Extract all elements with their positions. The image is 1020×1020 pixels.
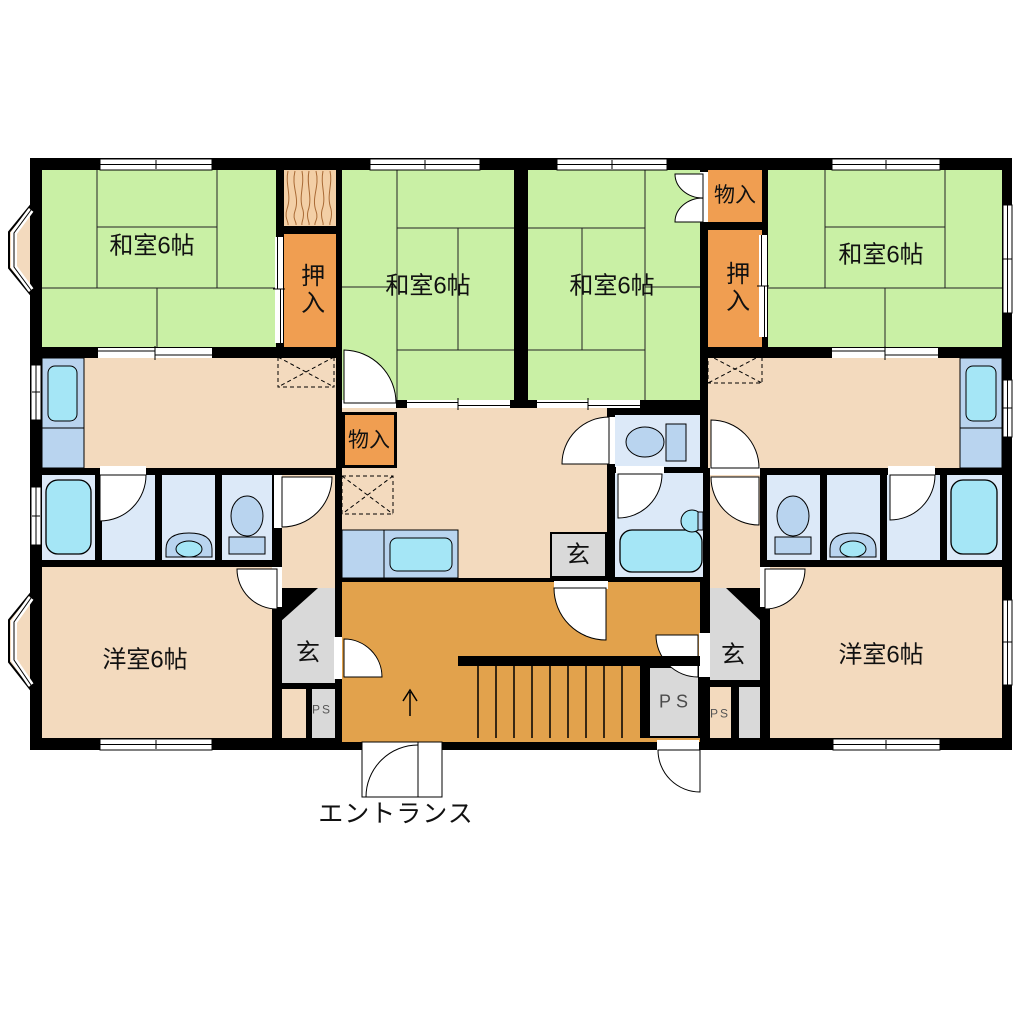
- western-room-2-label: 洋室6帖: [838, 642, 923, 667]
- tokonoma-alcove: [284, 170, 336, 226]
- bathroom-center: [615, 473, 703, 577]
- genkan-right-label: 玄: [721, 642, 745, 667]
- corridor-right: [710, 475, 760, 588]
- vanity-left: [162, 475, 215, 560]
- entrance-hall: [342, 582, 700, 742]
- pipe-space-left-a: [282, 689, 306, 738]
- washroom-right: [887, 475, 940, 560]
- kitchen-left: [42, 358, 336, 468]
- vanity-right: [827, 475, 880, 560]
- entrance-label: エントランス: [318, 801, 474, 827]
- pipe-space-left-label: PS: [312, 704, 332, 717]
- japanese-room-3-label: 和室6帖: [569, 273, 654, 298]
- floor-plan: 和室6帖 和室6帖 和室6帖 和室6帖 押入 押入 物入 物入 洋室6帖 洋室6…: [0, 0, 1020, 1020]
- pipe-space-right-b: [739, 687, 760, 738]
- toilet-right: [767, 475, 820, 560]
- bathroom-right: [947, 475, 1002, 560]
- storage-top-label: 物入: [714, 185, 756, 207]
- corridor-left: [282, 475, 335, 588]
- japanese-room-2-label: 和室6帖: [385, 273, 470, 298]
- pipe-space-right-label: PS: [710, 708, 730, 721]
- closet-left-label: 押入: [297, 263, 322, 317]
- washroom-left: [102, 475, 155, 560]
- japanese-room-4-label: 和室6帖: [838, 242, 923, 267]
- storage-center-label: 物入: [348, 430, 390, 452]
- western-room-1-label: 洋室6帖: [102, 647, 187, 672]
- pipe-space-center-label: PS: [659, 693, 693, 712]
- genkan-left-label: 玄: [296, 640, 320, 665]
- genkan-center-label: 玄: [566, 542, 590, 567]
- entrance-door: [362, 742, 442, 797]
- toilet-center: [615, 415, 700, 467]
- toilet-left: [222, 475, 272, 560]
- bay-windows: [9, 205, 31, 690]
- kitchen-right: [708, 358, 1002, 468]
- closet-right-label: 押入: [722, 261, 747, 315]
- japanese-room-1-label: 和室6帖: [109, 233, 194, 258]
- bathroom-left: [42, 475, 95, 560]
